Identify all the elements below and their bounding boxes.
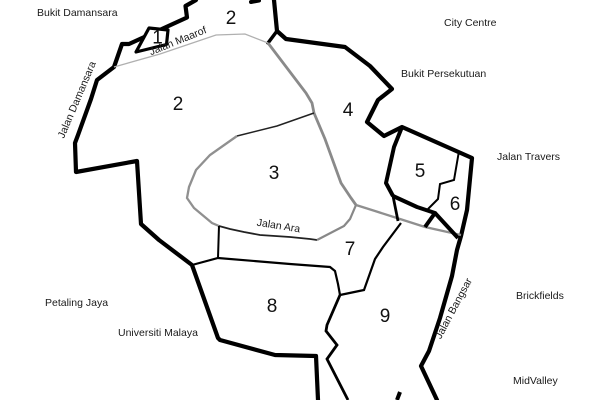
svg-text:Petaling Jaya: Petaling Jaya [45, 297, 108, 309]
svg-text:8: 8 [267, 296, 278, 317]
svg-text:Universiti Malaya: Universiti Malaya [118, 327, 198, 339]
svg-text:MidValley: MidValley [513, 375, 558, 387]
svg-text:6: 6 [450, 194, 461, 215]
svg-text:4: 4 [343, 100, 354, 121]
svg-text:7: 7 [345, 239, 356, 260]
svg-text:City Centre: City Centre [444, 17, 497, 29]
svg-text:5: 5 [415, 161, 426, 182]
svg-text:2: 2 [226, 8, 237, 29]
svg-text:1: 1 [152, 28, 163, 49]
svg-text:Brickfields: Brickfields [516, 290, 564, 302]
svg-text:Bukit Persekutuan: Bukit Persekutuan [401, 68, 486, 80]
svg-text:9: 9 [380, 306, 391, 327]
svg-text:3: 3 [269, 163, 280, 184]
svg-text:Bukit Damansara: Bukit Damansara [37, 7, 118, 19]
svg-text:Jalan Travers: Jalan Travers [497, 151, 560, 163]
svg-text:2: 2 [173, 94, 184, 115]
